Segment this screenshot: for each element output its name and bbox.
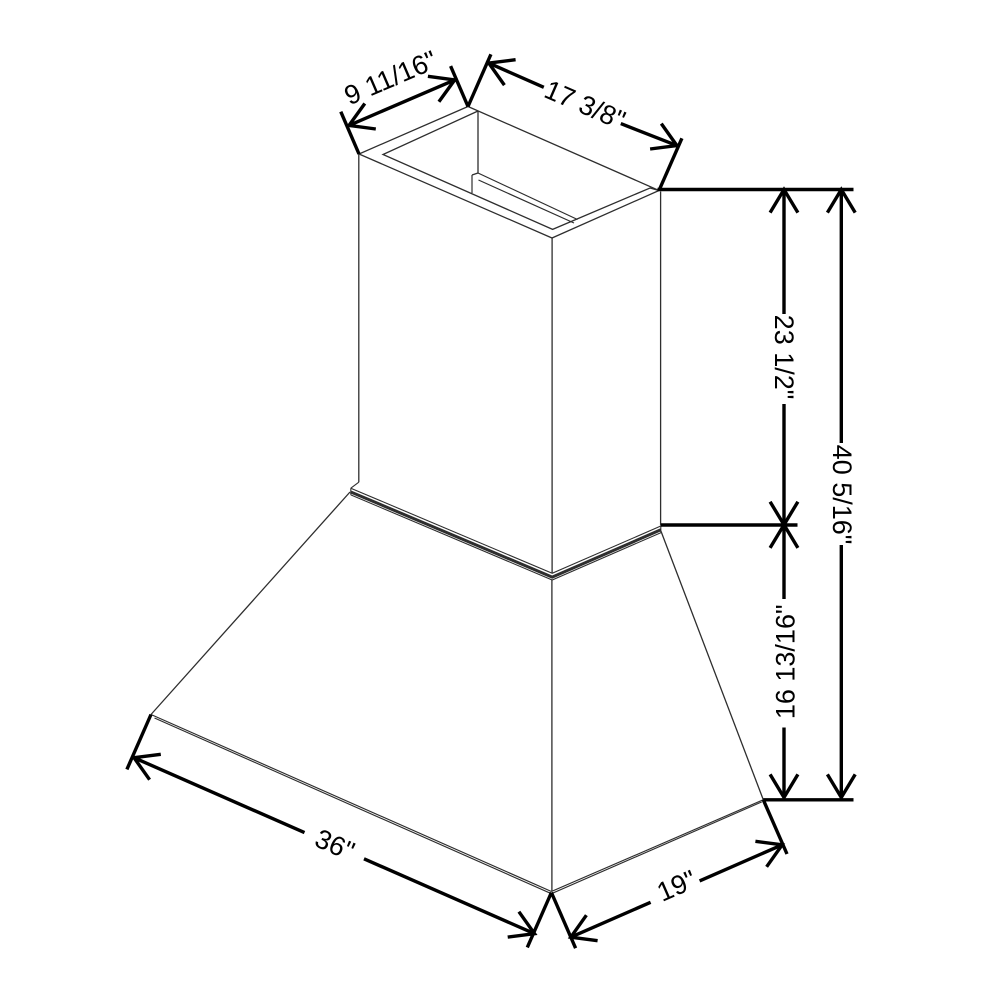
svg-text:36": 36" xyxy=(311,823,359,866)
svg-text:17 3/8": 17 3/8" xyxy=(540,74,630,135)
svg-text:40 5/16": 40 5/16" xyxy=(827,445,857,545)
svg-text:16 13/16": 16 13/16" xyxy=(770,604,800,719)
svg-text:9 11/16": 9 11/16" xyxy=(340,45,442,111)
svg-text:23 1/2": 23 1/2" xyxy=(769,315,799,400)
svg-text:19": 19" xyxy=(653,864,701,907)
